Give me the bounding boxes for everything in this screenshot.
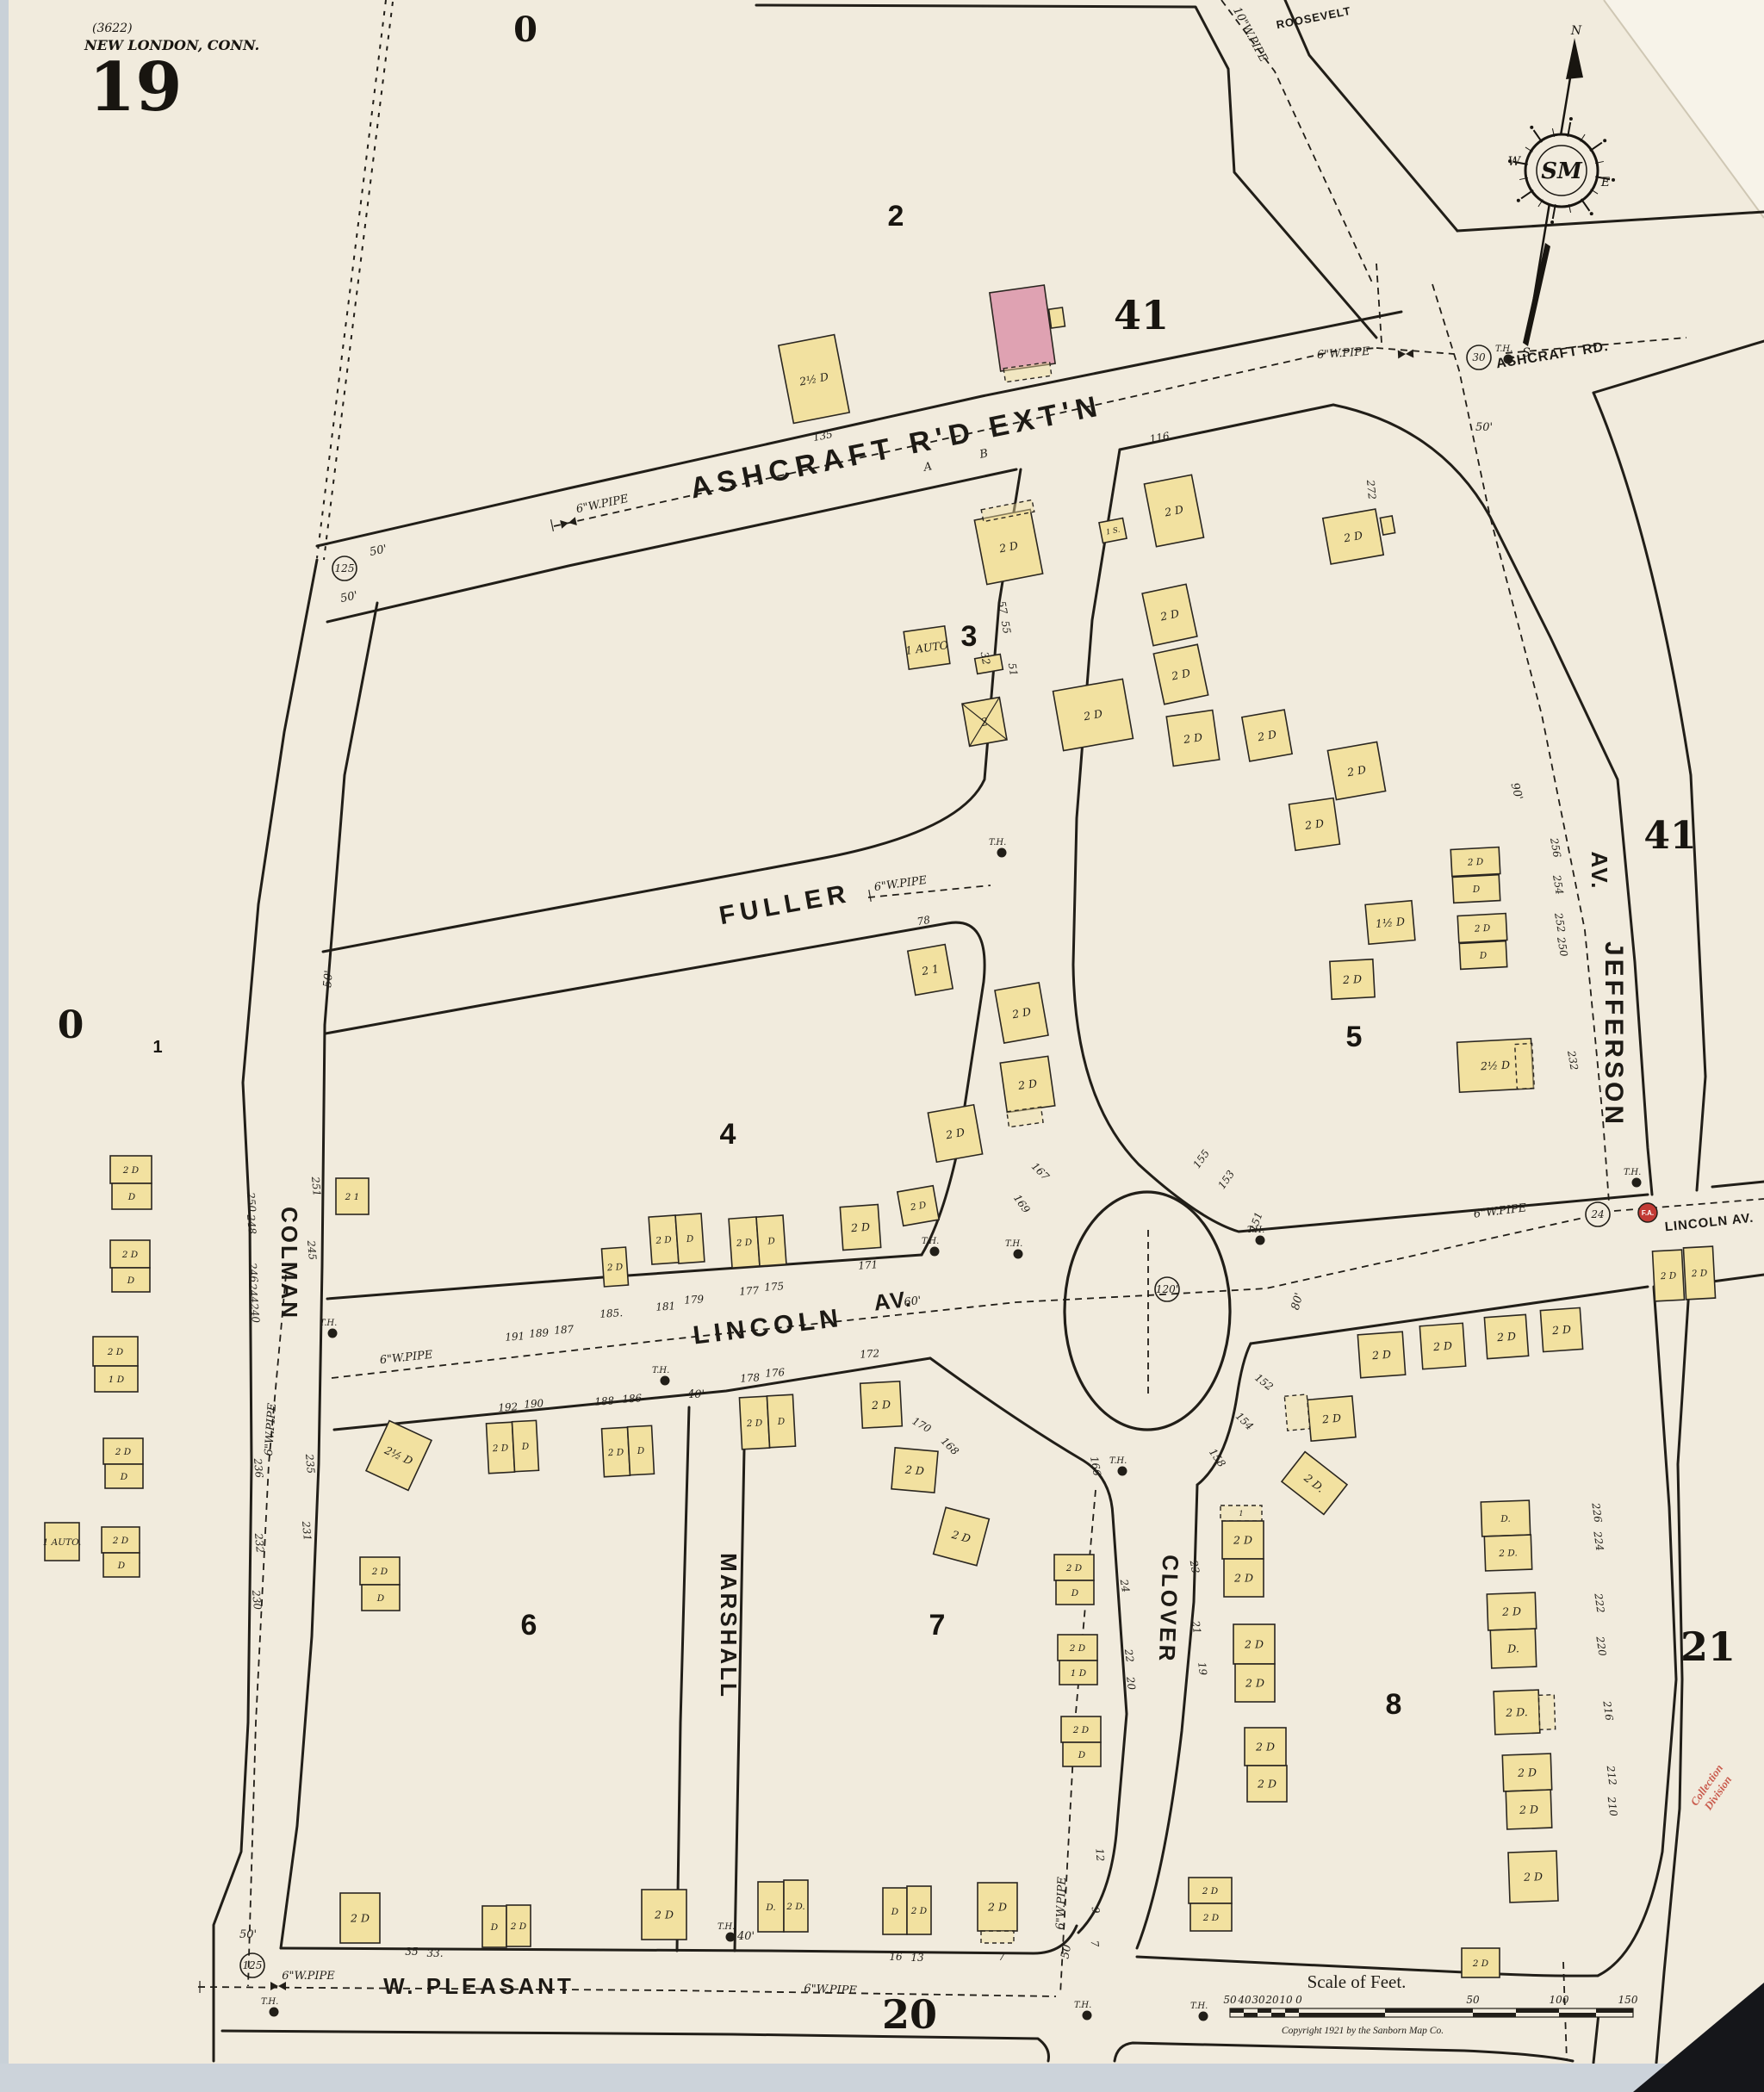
building-use-label: 1	[1239, 1510, 1243, 1518]
hydrant-dot-icon	[1199, 2012, 1208, 2021]
house-number: 171	[858, 1258, 879, 1272]
house-number: 187	[554, 1323, 575, 1337]
building: 2 D	[487, 1422, 515, 1473]
hydrant-dot-icon	[661, 1376, 670, 1386]
adjacent-sheet-number: 41	[1114, 292, 1169, 338]
building	[1284, 1394, 1309, 1431]
building-use-label: 2 D.	[1505, 1705, 1528, 1719]
building-use-label: 2 D.	[1498, 1548, 1518, 1559]
hydrant-label: T.H.	[1624, 1168, 1641, 1177]
building: 2 D	[1000, 1056, 1055, 1112]
building: 2 D	[103, 1438, 143, 1464]
compass-cardinal-letter: N	[1570, 24, 1582, 38]
block-number: 6	[521, 1609, 537, 1642]
house-number: 272	[1364, 479, 1378, 500]
building-use-label: 2 D	[1233, 1572, 1253, 1585]
hydrant-label: T.H.	[261, 1997, 278, 2007]
house-number: 24	[1118, 1578, 1133, 1593]
building-use-label: 2 D	[1523, 1870, 1543, 1884]
building: D	[362, 1585, 400, 1611]
hydrant-label: T.H.	[1005, 1239, 1022, 1249]
plate-number: (3622)	[92, 22, 133, 35]
building: D	[1056, 1580, 1094, 1605]
building: 2 D	[1053, 679, 1134, 750]
scale-bar-cell	[1385, 2008, 1473, 2013]
building: 2 D	[1222, 1521, 1264, 1559]
building: 2 D	[93, 1337, 138, 1366]
building: 2 D	[907, 1886, 931, 1934]
block-number: 3	[961, 620, 978, 653]
scale-tick-label: 0	[1295, 1994, 1302, 2006]
building: 2 D	[1506, 1790, 1552, 1829]
building: 2 D	[506, 1905, 531, 1946]
scale-tick-label: 20	[1264, 1994, 1279, 2006]
house-number: 57	[996, 600, 1010, 616]
building: 1 AUTO.	[43, 1523, 82, 1561]
building-use-label: 2 D	[607, 1447, 625, 1458]
building: 2 D	[1327, 742, 1385, 799]
building: 2 D	[340, 1893, 380, 1943]
house-number: 21	[1189, 1619, 1203, 1635]
hydrant-label: T.H.	[1074, 2001, 1091, 2010]
measurement-label: 60'	[904, 1294, 922, 1309]
building: 1 S.	[1099, 518, 1127, 543]
house-number: 212	[1605, 1764, 1619, 1785]
building: 2 D	[1224, 1559, 1264, 1597]
building: 2 D	[1245, 1728, 1286, 1766]
house-number: 175	[764, 1280, 785, 1294]
building: 2 D	[1508, 1851, 1558, 1903]
building: 2 D	[1054, 1555, 1094, 1580]
compass-dot	[1517, 199, 1520, 202]
hydrant-label: T.H.	[1109, 1456, 1127, 1466]
compass-cardinal-letter: S	[1522, 346, 1531, 360]
building: D.	[1490, 1629, 1537, 1668]
building-use-label: 2 D	[655, 1235, 673, 1246]
house-number: 33.	[426, 1947, 443, 1959]
building-use-label: 2 D	[492, 1443, 510, 1454]
house-number: 172	[860, 1347, 880, 1361]
house-number: 22	[1122, 1648, 1136, 1663]
building: 2 D	[360, 1557, 400, 1585]
building-use-label: 2 D	[510, 1921, 527, 1932]
building-use-label: 2 D	[1496, 1330, 1517, 1344]
hydrant-dot-icon	[726, 1933, 736, 1942]
building: 2 D	[1323, 509, 1383, 564]
hydrant-label: T.H.	[1190, 2002, 1208, 2011]
house-number: 19	[1196, 1661, 1209, 1676]
building: 2 D	[1540, 1307, 1582, 1351]
building-use-label: 2 D	[1255, 1741, 1275, 1754]
scale-tick-label: 100	[1550, 1994, 1569, 2006]
house-number: 35	[405, 1946, 418, 1958]
building-use-label: 2 D	[1501, 1605, 1521, 1618]
building: 2 D	[1061, 1716, 1101, 1742]
house-number: 177	[739, 1284, 760, 1298]
scan-edge-bottom	[0, 2064, 1764, 2092]
block-number: 1	[152, 1038, 162, 1057]
building: 2 D	[1357, 1332, 1405, 1378]
scale-bar-cell	[1230, 2008, 1244, 2013]
scale-tick-label: 30	[1252, 1994, 1265, 2006]
building-use-label: 2 D	[1202, 1886, 1219, 1896]
hydrant-label: T.H.	[652, 1366, 669, 1375]
circled-number: 30	[1472, 351, 1486, 363]
fire-alarm-label: F.A.	[1642, 1209, 1654, 1217]
house-number: 231	[300, 1520, 314, 1542]
house-number: 16	[889, 1951, 903, 1963]
building-use-label: 1 D	[1071, 1668, 1087, 1679]
building-use-label: D	[777, 1417, 786, 1428]
adjacent-sheet-number: 20	[882, 1991, 937, 2038]
scale-bar-cell	[1258, 2008, 1271, 2013]
building: 2 D	[1233, 1624, 1275, 1664]
scale-bar-cell	[1285, 2008, 1299, 2013]
building-use-label: D	[376, 1593, 385, 1604]
street-name-label: COLMAN	[276, 1207, 302, 1320]
compass-monogram: SM	[1541, 158, 1583, 184]
building: 2 1	[908, 945, 953, 996]
building-use-label: 2 D.	[786, 1902, 804, 1912]
building-use-label: 2 D	[746, 1418, 764, 1429]
scale-tick-label: 150	[1618, 1994, 1638, 2006]
compass-dot	[1569, 117, 1573, 121]
building: 2 D	[1307, 1396, 1356, 1441]
building-use-label: 2 D	[1517, 1766, 1537, 1779]
building: 2 D	[102, 1527, 140, 1553]
block-number: 4	[720, 1118, 736, 1151]
measurement-label: 40'	[686, 1388, 705, 1401]
building-use-label: 2 D	[1202, 1913, 1220, 1923]
building-use-label: 2 D	[350, 1912, 370, 1925]
building: 2 D	[1189, 1878, 1232, 1903]
building: D	[1459, 941, 1506, 970]
building-use-label: D	[1479, 951, 1488, 962]
building-use-label: 2 D	[1467, 857, 1485, 868]
building-use-label: 1 AUTO.	[43, 1537, 82, 1548]
building-use-label: 2 D	[371, 1567, 388, 1577]
house-number: 230	[250, 1589, 264, 1611]
house-number: 20	[1124, 1675, 1138, 1691]
building: 2 D.	[784, 1880, 808, 1932]
hydrant-dot-icon	[270, 2008, 279, 2017]
scale-bar-cell	[1271, 2013, 1285, 2017]
compass-dot	[1590, 212, 1593, 215]
building-use-label: D	[891, 1907, 899, 1917]
block-number: 5	[1346, 1021, 1363, 1053]
house-number: 13	[910, 1952, 924, 1964]
building-use-label: 2 D	[910, 1906, 928, 1916]
building	[1380, 516, 1394, 535]
building: D	[756, 1215, 786, 1266]
building: 1 AUTO	[903, 626, 951, 670]
adjacent-sheet-number: 0	[513, 9, 537, 50]
house-number: 251	[309, 1176, 323, 1197]
building: 2 D	[1330, 959, 1375, 1000]
building: 2	[962, 698, 1007, 747]
building: 2 D	[1683, 1246, 1715, 1300]
building-use-label: 2 D	[654, 1909, 674, 1921]
hydrant-dot-icon	[930, 1247, 940, 1257]
street-name-label: W. PLEASANT	[383, 1973, 575, 1999]
building: 2 D	[1502, 1754, 1551, 1791]
house-number: 246	[246, 1262, 260, 1283]
building: 2 D	[602, 1427, 630, 1476]
building: 2 D	[840, 1205, 880, 1251]
building-use-label: D	[685, 1233, 694, 1245]
building-use-label: 2 D	[1233, 1534, 1252, 1547]
house-number: 185.	[599, 1307, 624, 1320]
building	[1515, 1044, 1535, 1089]
building-use-label: 2 D	[121, 1250, 139, 1260]
hydrant-dot-icon	[1118, 1467, 1127, 1476]
building: D	[512, 1420, 539, 1471]
building: D	[112, 1183, 152, 1209]
measurement-label: 50'	[321, 970, 336, 988]
house-number: 244	[246, 1282, 260, 1304]
house-number: 248	[245, 1214, 258, 1235]
building: 2 1	[336, 1178, 369, 1214]
building-use-label: 1½ D	[1375, 915, 1405, 930]
building-use-label: 2½ D	[1480, 1058, 1511, 1073]
building-use-label: D	[490, 1922, 499, 1933]
building: 2 D	[1450, 847, 1500, 877]
house-number: 192	[498, 1400, 519, 1414]
building-footprint	[990, 285, 1055, 371]
street-name-label: MARSHALL	[716, 1553, 742, 1699]
building: 2 D	[1653, 1250, 1685, 1301]
building: 2 D	[1462, 1948, 1500, 1977]
building: 2 D	[1190, 1903, 1232, 1931]
building: D	[1452, 875, 1500, 903]
scale-bar-cell	[1516, 2008, 1559, 2013]
house-number: 191	[505, 1330, 525, 1344]
scale-bar-cell	[1559, 2013, 1596, 2017]
street-name-label: CLOVER	[1154, 1555, 1183, 1664]
building-use-label: 2 D	[871, 1398, 891, 1412]
building-use-label: 2 D	[1320, 1412, 1341, 1426]
building-use-label: 2 D	[1342, 972, 1363, 986]
building-use-label: 2 D	[1474, 923, 1492, 934]
house-number: 32	[978, 651, 992, 666]
block-number: 8	[1386, 1688, 1402, 1721]
hydrant-dot-icon	[1014, 1250, 1023, 1259]
building: 1	[1221, 1505, 1262, 1521]
building: 2 D	[110, 1240, 150, 1268]
building-use-label: D	[1472, 885, 1481, 896]
house-number: 190	[524, 1397, 544, 1411]
building-use-label: D	[521, 1442, 531, 1453]
building: 2 D	[1484, 1314, 1528, 1358]
building-use-label: D	[1071, 1588, 1079, 1598]
building-use-label: D	[117, 1561, 126, 1571]
house-number: 236	[252, 1457, 265, 1479]
house-number: 176	[765, 1366, 786, 1380]
compass-dot	[1603, 139, 1606, 142]
hydrant-dot-icon	[1632, 1178, 1642, 1188]
building: 2 D.	[1484, 1535, 1531, 1571]
building-use-label: D.	[1500, 1514, 1511, 1524]
scale-tick-label: 10	[1279, 1994, 1293, 2006]
house-number: 189	[529, 1326, 550, 1340]
building: D.	[1481, 1500, 1530, 1536]
building: 2 D	[739, 1396, 769, 1450]
building: 2 D	[1235, 1664, 1275, 1702]
building: 2 D	[1242, 710, 1292, 761]
measurement-label: 50'	[1475, 421, 1493, 434]
circled-number: 125	[243, 1959, 263, 1971]
block-number: 2	[888, 200, 904, 233]
circled-number: 24	[1590, 1208, 1604, 1220]
compass-dot	[1530, 126, 1533, 129]
building-use-label: 1 D	[109, 1375, 125, 1385]
house-number: 51	[1006, 662, 1020, 677]
building-footprint	[1380, 516, 1394, 535]
building: D	[628, 1425, 655, 1474]
building-use-label: 2 D	[115, 1447, 132, 1457]
building-use-label: 2 D	[1016, 1077, 1038, 1092]
building: 2 D	[642, 1890, 686, 1940]
circled-number: 125	[335, 562, 355, 574]
measurement-label: 40'	[736, 1930, 755, 1943]
building: 2 D	[1166, 711, 1220, 767]
building	[981, 1931, 1014, 1943]
hydrant-label: T.H.	[989, 838, 1006, 847]
house-number: 232	[252, 1532, 266, 1554]
building-use-label: 2 D	[1244, 1638, 1264, 1651]
pipe-label: 6"W.PIPE	[282, 1970, 335, 1983]
building-use-label: 2 D	[1069, 1643, 1086, 1654]
house-number: 250.	[245, 1191, 258, 1216]
house-number: 23	[1188, 1559, 1202, 1575]
scale-bar-cell	[1244, 2013, 1258, 2017]
house-number: 179	[684, 1293, 705, 1307]
building: 2 D	[1247, 1766, 1287, 1802]
building-use-label: 2 1	[345, 1192, 360, 1202]
building: 2 D	[1419, 1323, 1465, 1369]
building: 1 D	[1059, 1661, 1097, 1685]
scale-tick-label: 50	[1223, 1994, 1237, 2006]
building-use-label: 2 D	[850, 1220, 871, 1235]
house-number: 12	[1093, 1847, 1106, 1861]
hydrant-dot-icon	[1256, 1236, 1265, 1245]
house-number: 235	[303, 1453, 317, 1474]
house-number: 186	[622, 1392, 643, 1406]
building-use-label: 2 D	[1551, 1323, 1572, 1338]
building-use-label: 2 D	[1432, 1339, 1453, 1354]
building: 2 D	[891, 1448, 938, 1493]
building: D	[767, 1394, 795, 1447]
building: D	[112, 1268, 150, 1292]
adjacent-sheet-number: 0	[58, 1003, 84, 1047]
sanborn-map: 6"W.PIPE6"W.PIPE10"W.PIPE6"W.PIPE6"W.PIP…	[0, 0, 1764, 2092]
building-use-label: 2 D	[1303, 816, 1325, 832]
building-use-label: 2 D	[1072, 1725, 1090, 1735]
building-use-label: D	[127, 1276, 135, 1286]
building: 2 D	[995, 983, 1048, 1043]
house-number: 245	[305, 1239, 319, 1261]
building: 2 D	[1153, 644, 1208, 705]
street-name-label: JEFFERSON	[1599, 941, 1628, 1127]
scale-bar-cell	[1596, 2008, 1633, 2013]
house-number: 178	[740, 1371, 761, 1385]
building-use-label: 2 D	[1519, 1803, 1538, 1816]
building-use-label: D.	[1506, 1642, 1519, 1654]
building-porch-outline	[1538, 1695, 1555, 1730]
building-use-label: 2 D	[1472, 1959, 1489, 1969]
scale-bar-cell	[1299, 2013, 1385, 2017]
building-footprint	[1049, 307, 1065, 328]
building-use-label: 2 D	[987, 1901, 1007, 1914]
building-porch-outline	[981, 1931, 1014, 1943]
circled-number: 120'	[1156, 1283, 1178, 1295]
building-use-label: 2 D	[1065, 1563, 1083, 1574]
scale-title: Scale of Feet.	[1307, 1971, 1407, 1992]
building-use-label: 2 D	[112, 1536, 129, 1546]
compass-cardinal-letter: W	[1508, 155, 1522, 169]
building	[1049, 307, 1065, 328]
building: D	[883, 1888, 907, 1934]
hydrant-dot-icon	[997, 848, 1007, 858]
building: 2 D.	[1494, 1690, 1540, 1735]
building-use-label: D.	[765, 1903, 775, 1913]
building: 2 D	[898, 1186, 939, 1226]
building: 2 D	[649, 1215, 679, 1264]
hydrant-dot-icon	[328, 1329, 338, 1338]
building: D	[482, 1906, 506, 1947]
house-number: 7	[998, 1951, 1005, 1963]
hydrant-label: T.H.	[320, 1319, 337, 1328]
house-number: 78	[916, 914, 932, 928]
adjacent-sheet-number: 21	[1680, 1623, 1736, 1670]
scale-tick-label: 50	[1466, 1994, 1480, 2006]
building-use-label: 2 D	[1257, 1778, 1276, 1791]
building-porch-outline	[1515, 1044, 1535, 1089]
adjacent-sheet-number: 41	[1643, 814, 1696, 858]
building-use-label: 2 D	[606, 1262, 624, 1273]
building: 2 D	[978, 1883, 1017, 1931]
building-use-label: D	[1078, 1750, 1086, 1760]
building-use-label: 2 D	[122, 1165, 140, 1176]
building: 2 D	[1289, 798, 1339, 851]
scan-edge-left	[0, 0, 9, 2092]
house-number: 181	[655, 1300, 676, 1313]
house-number: 55	[999, 620, 1013, 635]
building: 1½ D	[1365, 901, 1415, 945]
building-use-label: 2 D	[1371, 1348, 1392, 1363]
building: D	[103, 1553, 140, 1577]
scale-tick-label: 40	[1237, 1994, 1252, 2006]
building-use-label: 2 D	[904, 1462, 924, 1477]
sheet-number: 19	[89, 48, 183, 127]
house-number: 188	[594, 1394, 615, 1408]
street-name-label: AV.	[1587, 851, 1612, 890]
building: 2 D	[110, 1156, 152, 1183]
hydrant-dot-icon	[1083, 2011, 1092, 2021]
copyright-note: Copyright 1921 by the Sanborn Map Co.	[1282, 2026, 1444, 2036]
building-use-label: D	[637, 1446, 646, 1457]
building-brick	[990, 285, 1055, 371]
building: 2 D	[729, 1217, 760, 1268]
building-porch-outline	[1284, 1394, 1309, 1431]
compass-cardinal-letter: E	[1600, 176, 1610, 189]
building: 2 D	[601, 1247, 628, 1287]
building: 2 D	[1058, 1635, 1097, 1661]
building-use-label: 2 D	[1691, 1268, 1709, 1279]
building: D	[675, 1214, 705, 1263]
building-use-label: 2 D	[735, 1238, 753, 1249]
building	[1538, 1695, 1555, 1730]
